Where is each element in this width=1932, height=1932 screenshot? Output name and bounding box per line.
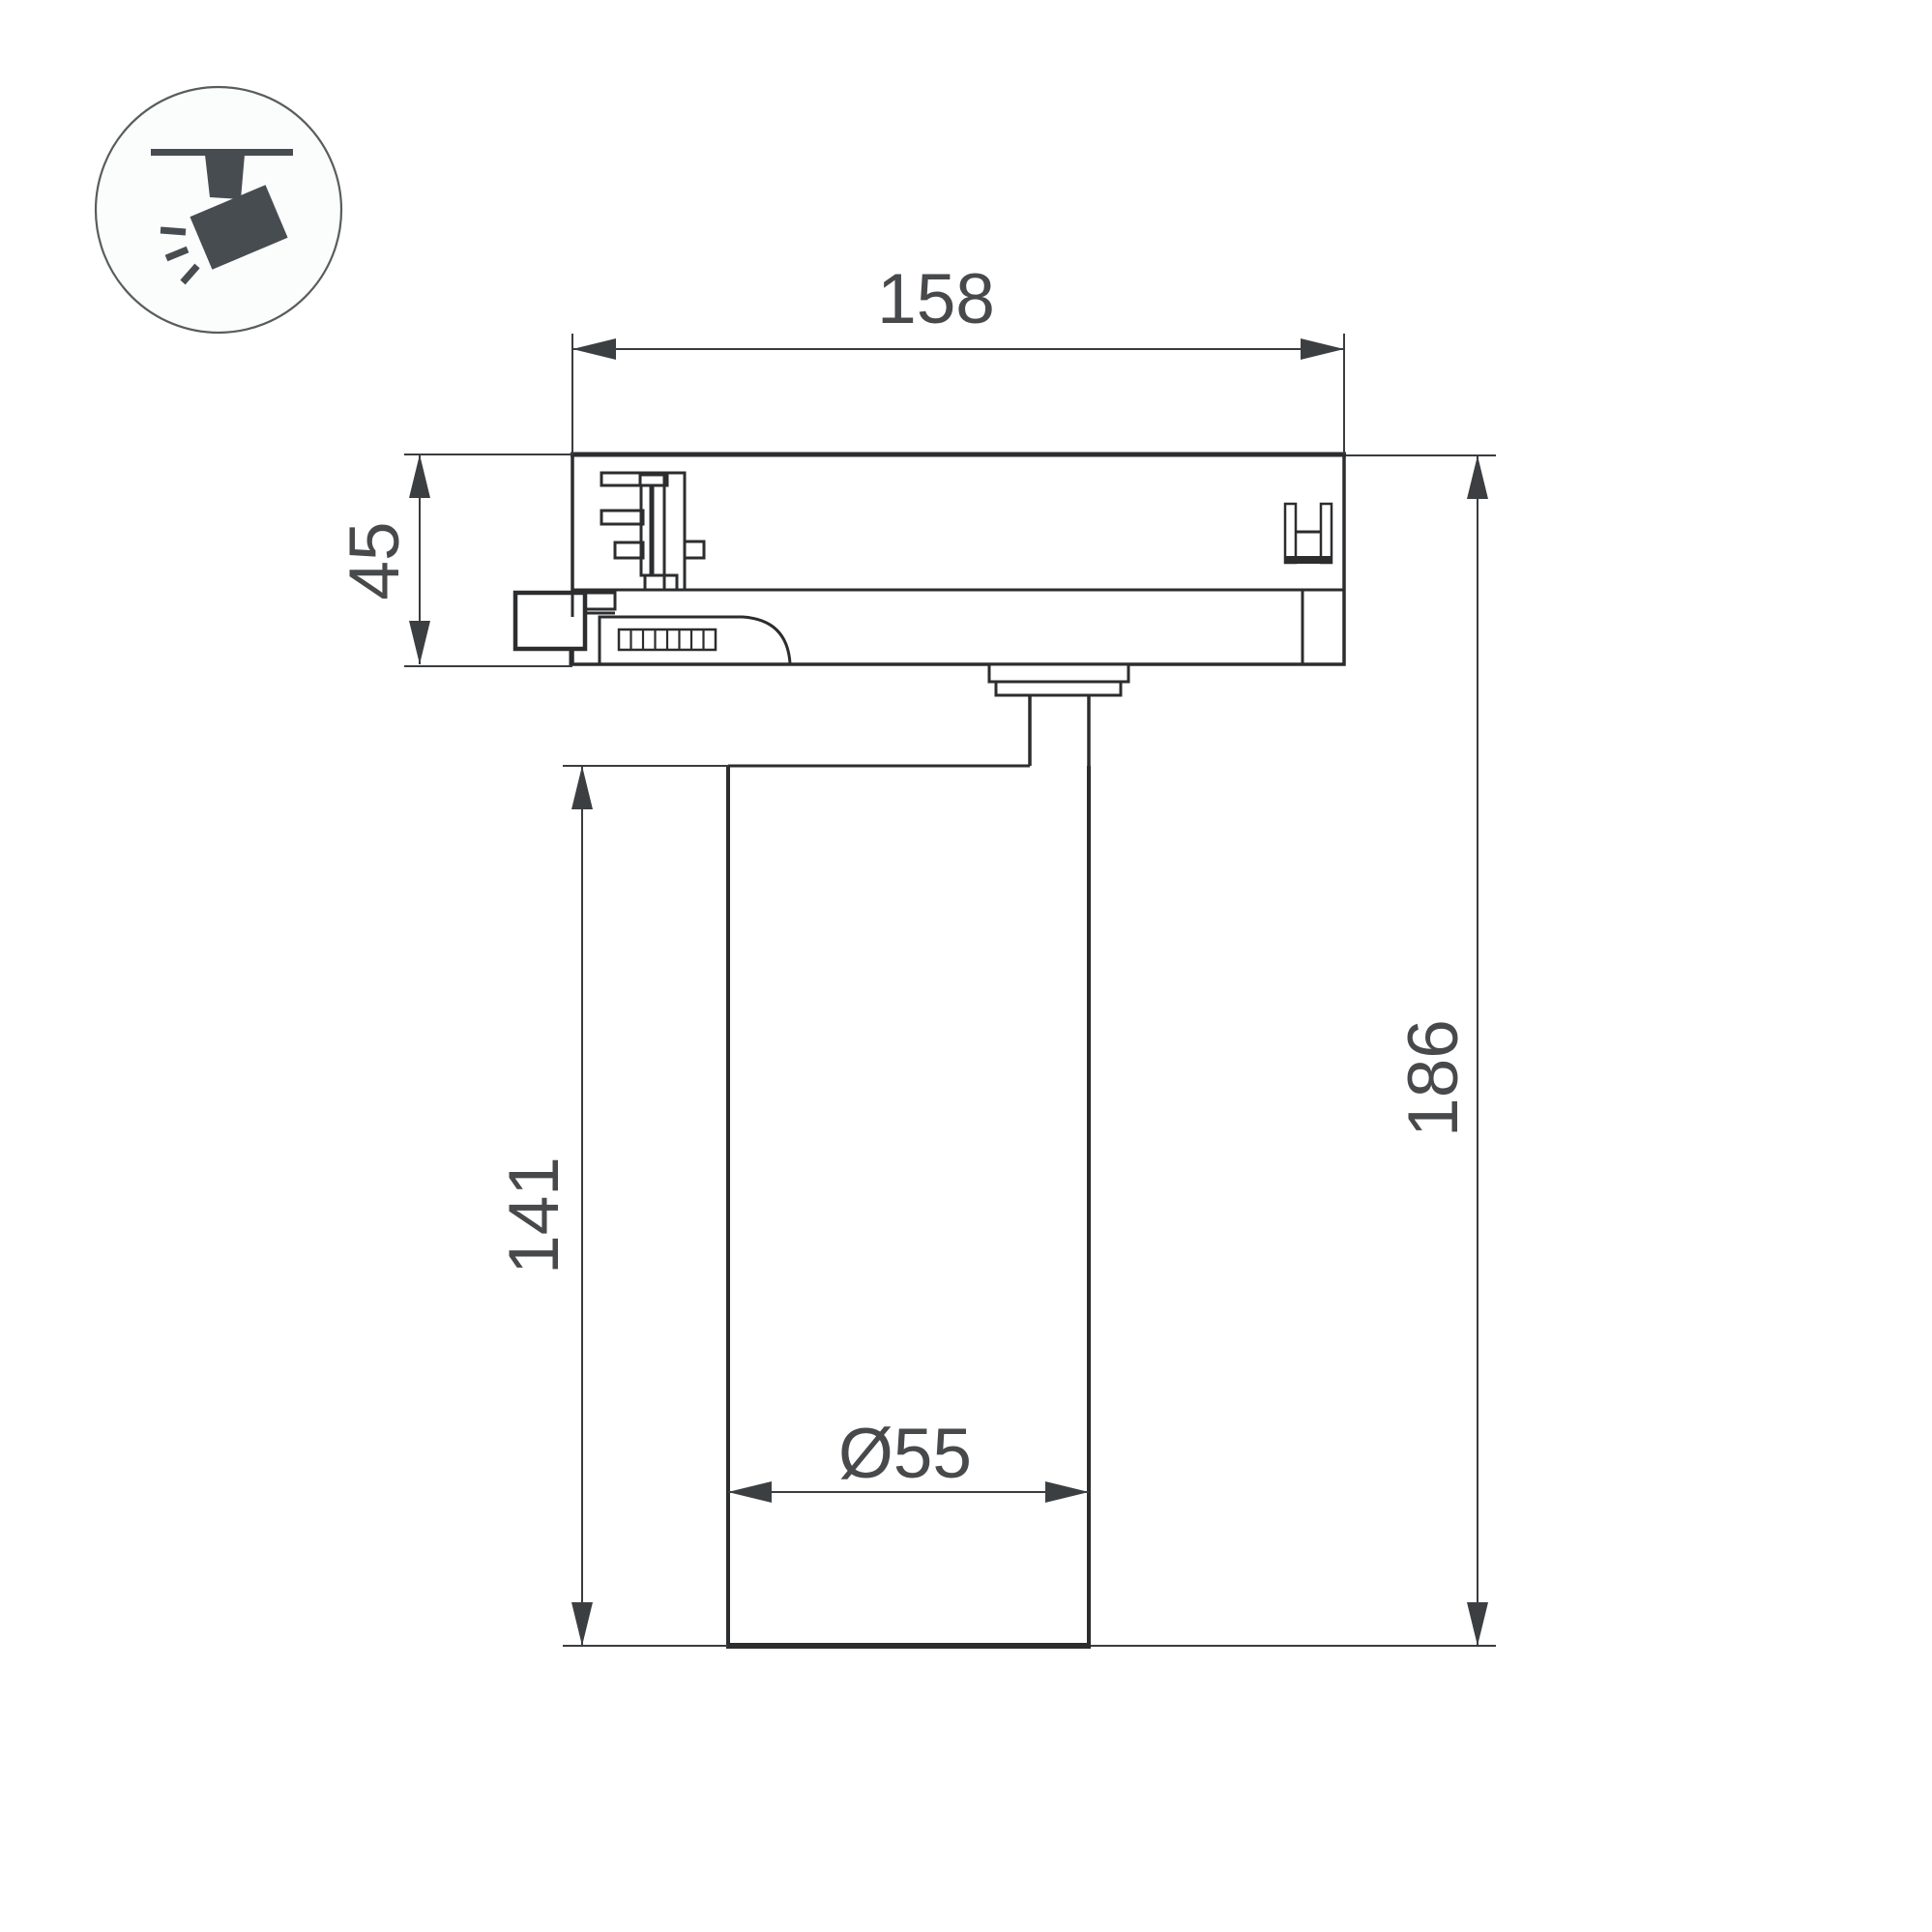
track-spotlight-icon [96,87,341,333]
dimension-label: 158 [877,260,995,338]
arrowhead-left [728,1481,772,1503]
dimension-diameter-55: Ø55 [728,1415,1089,1503]
drawing-canvas: 158 45 141 186 Ø55 [0,0,1932,1932]
arrowhead-up [409,454,430,498]
dimension-width-158: 158 [572,260,1344,454]
arrowhead-left [572,338,616,360]
icon-fixture-stem [205,155,245,199]
mounting-joint [989,664,1128,766]
joint-flange-lower [996,682,1121,695]
track-adapter [515,454,1346,664]
icon-light-ray [161,230,186,232]
dimension-label: 45 [336,521,414,600]
arrowhead-right [1301,338,1344,360]
latch-block [515,593,585,649]
icon-track-bar [151,149,293,156]
arrowhead-right [1045,1481,1089,1503]
arrowhead-down [1467,1602,1488,1646]
technical-drawing: 158 45 141 186 Ø55 [0,0,1932,1932]
dimension-label: 186 [1394,1019,1473,1137]
arrowhead-down [409,621,430,664]
dimension-label: 141 [495,1156,573,1274]
bracket-base [1285,556,1332,564]
arrowhead-up [1467,455,1488,499]
joint-flange-upper [989,664,1128,682]
dimension-label: Ø55 [838,1415,972,1493]
lamp-body [726,766,1091,1646]
arrowhead-up [571,766,593,809]
dimension-body-height-141: 141 [495,766,728,1646]
arrowhead-down [571,1602,593,1646]
